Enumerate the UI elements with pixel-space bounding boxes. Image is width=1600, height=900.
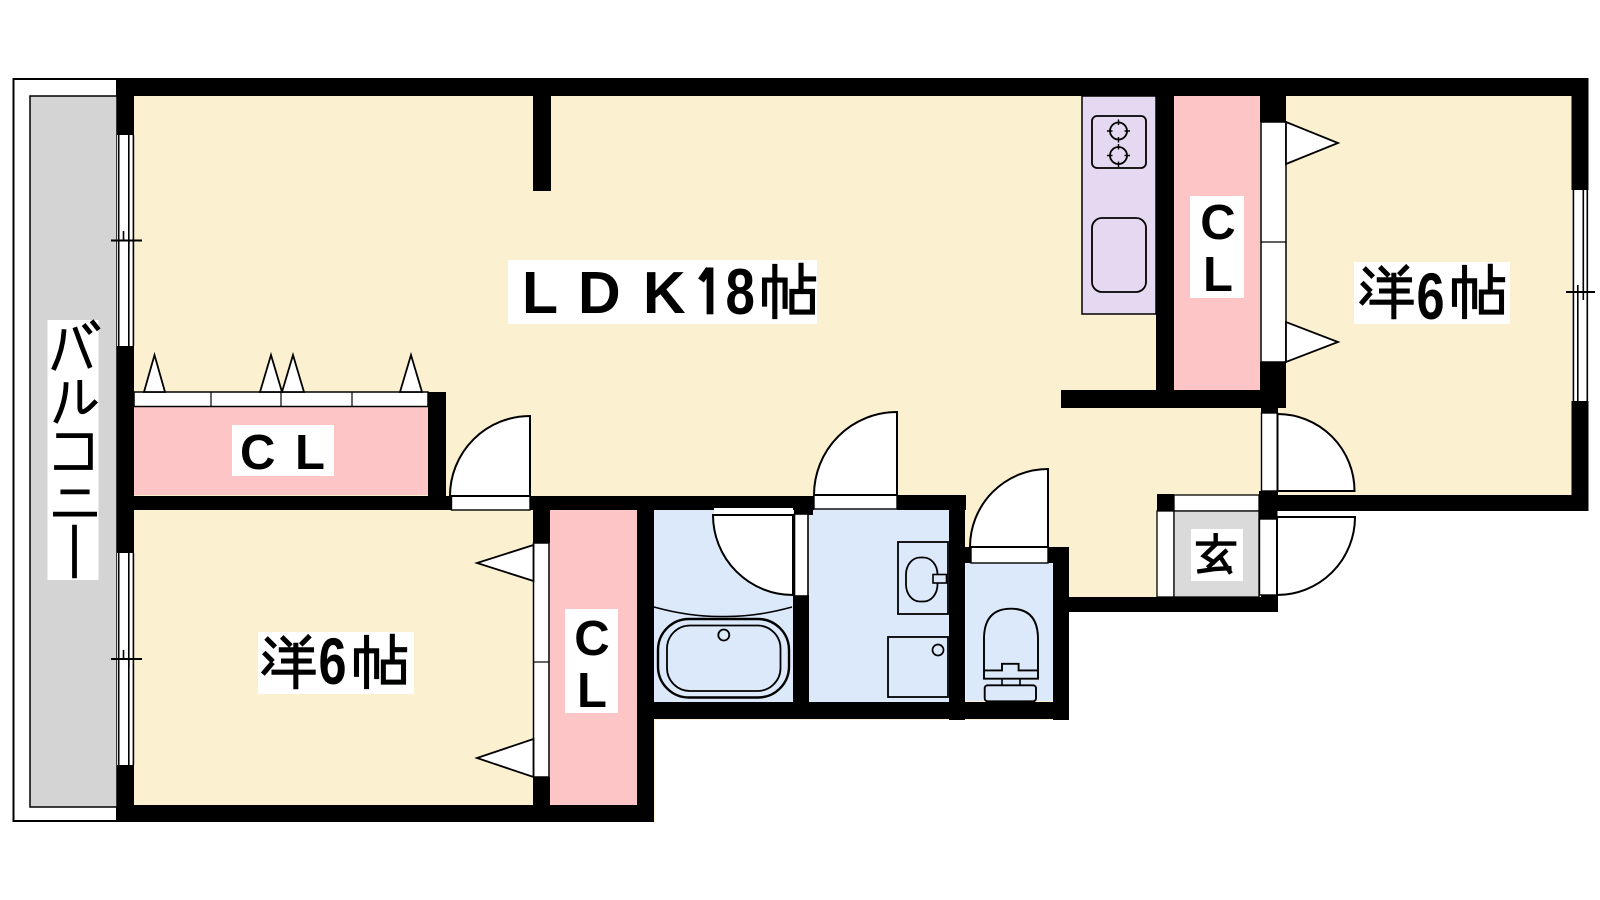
svg-text:D: D: [578, 260, 621, 326]
svg-text:C: C: [574, 612, 609, 666]
svg-text:C: C: [1200, 196, 1235, 250]
svg-text:K: K: [643, 260, 686, 326]
svg-text:L: L: [1203, 248, 1233, 302]
svg-text:6: 6: [319, 626, 347, 699]
svg-text:8: 8: [726, 257, 755, 328]
svg-text:6: 6: [1417, 261, 1445, 334]
svg-text:C L: C L: [240, 426, 328, 480]
svg-text:L: L: [577, 664, 607, 718]
svg-text:L: L: [522, 260, 558, 326]
